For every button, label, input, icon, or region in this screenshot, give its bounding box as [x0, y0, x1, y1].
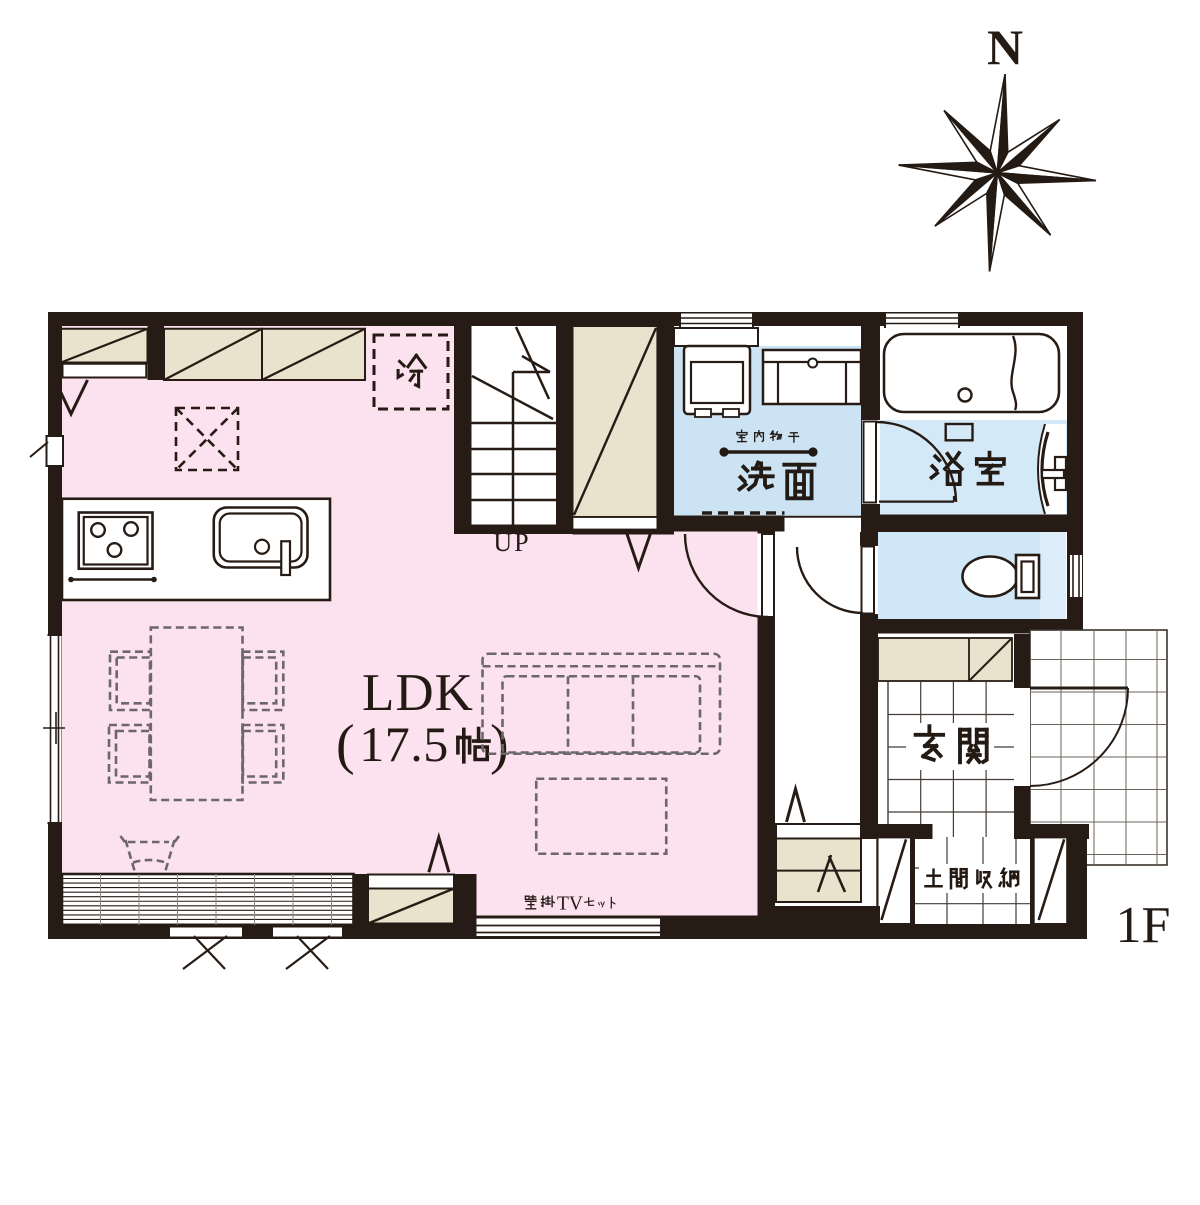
svg-text:LDK: LDK [362, 664, 474, 722]
svg-text:17.5: 17.5 [359, 716, 449, 772]
svg-text:UP: UP [493, 528, 530, 557]
svg-text:): ) [490, 714, 509, 776]
svg-text:TV: TV [557, 894, 583, 915]
svg-text:1F: 1F [1116, 897, 1171, 954]
svg-text:N: N [987, 19, 1023, 75]
svg-text:(: ( [336, 714, 355, 776]
